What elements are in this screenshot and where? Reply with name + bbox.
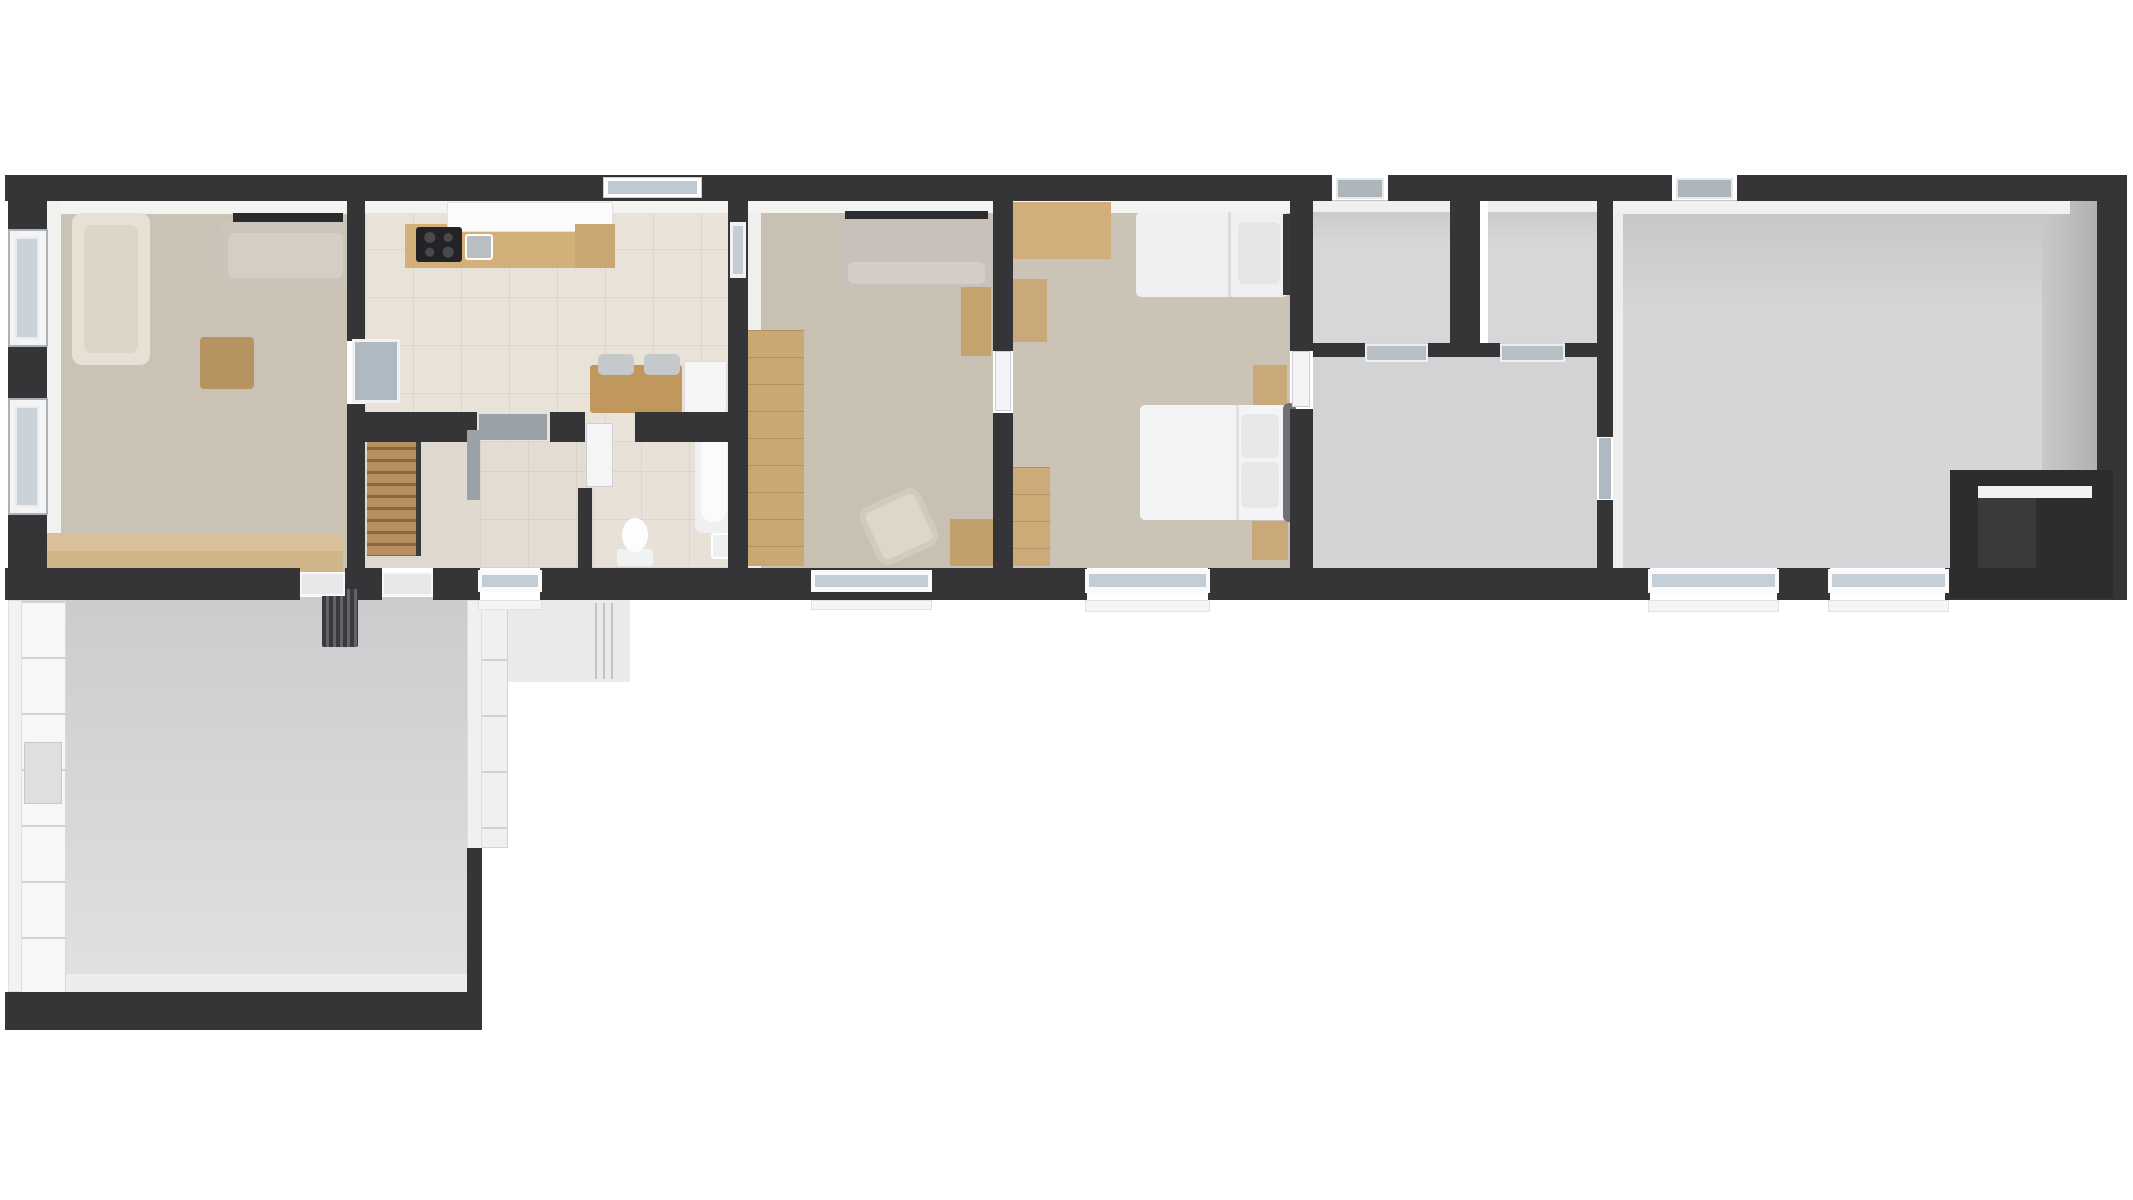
wall-bedroom-a-b-upper [993,175,1013,351]
garage-bottom-wall-face [22,974,467,994]
bedroom-b-cabinet [1010,279,1047,342]
wall-bedroom-a-b-lower [993,413,1013,568]
living-west-wall-face [47,201,61,577]
kitchen-bottom-wall-3 [635,412,740,442]
bedroom-a-window-sill [811,600,932,610]
bedroom-a-bottom-window-glass [815,575,928,587]
right-room-west-wall-face [1613,213,1623,568]
tv-console-strip [233,213,343,222]
right-room-window-2-sill [1828,600,1949,612]
door-bedroom-a [995,351,1011,411]
bottom-wall-1 [5,568,300,600]
bedroom-a-headboard [845,211,988,219]
right-room-window-1-sill [1648,600,1779,612]
corridor-floor [1313,343,1597,568]
stoop-grate [595,603,617,679]
niche-shelf [1978,486,2092,498]
kitchen-top-window-glass [608,181,697,194]
wall-living-kitchen-upper [347,175,365,341]
wall-small-rooms-divider [1450,175,1480,355]
door-living-kitchen [352,339,400,403]
double-bed-fold [1236,405,1239,520]
wall-bedroom-b-corridor-upper [1290,175,1313,351]
double-bed-pillow-2 [1241,462,1279,508]
wall-corridor-right-room-upper [1597,175,1613,437]
right-room-top-wall-face [1613,201,2070,214]
wall-corridor-right-room-lower [1597,500,1613,568]
small-room-2-wall-face [1488,201,1600,212]
niche-inner-floor [1978,498,2036,568]
top-wall-east [1737,175,2110,201]
bedroom-a-desk [950,519,993,566]
stairs-run [367,426,417,556]
wall-below-small-rooms-mid [1428,343,1500,357]
kitchen-sink [465,234,493,260]
bedroom-b-patio-door-glass [1089,574,1206,587]
bottom-wall-6 [1777,568,1830,600]
west-wall-stub-1 [8,175,47,229]
bedroom-b-door-sill [1085,600,1210,612]
kitchen-bottom-wall-1 [347,412,477,442]
bathtub-inner [701,434,727,522]
bedroom-b-desk [1007,202,1111,259]
entry-door-sill-2 [1676,178,1733,199]
living-sofa-2-seat [228,233,343,278]
hallway-window-sill [478,600,542,610]
garage-west-wall [8,600,22,992]
bedroom-a-sideboard [961,287,991,356]
stair-railing [416,426,421,556]
garage-threshold-stairwell [382,572,433,596]
counter-board [575,224,615,268]
toilet-bowl [622,518,648,552]
bench-highlight [42,533,343,551]
small-room-1-threshold [1365,344,1428,362]
nightstand-b2 [1252,521,1288,560]
single-bed-headboard [1283,214,1290,295]
bottom-wall-3 [433,568,480,600]
door-stairwell-hallway [467,430,480,500]
garage-bottom-wall [5,992,482,1030]
small-room-2-floor [1488,200,1600,343]
right-room-window-1-glass [1652,574,1775,587]
small-room-1-floor [1313,200,1452,343]
wall-living-stairwell [347,442,365,577]
west-wall-stub-2 [8,347,47,398]
door-bathroom [586,423,613,487]
door-bedroom-b [1292,351,1310,407]
kitchen-bottom-wall-2 [550,412,585,442]
garage-shelf-items [24,742,62,804]
entry-door-sill-1 [1336,178,1384,199]
living-west-window-2-glass [15,406,39,507]
single-bed-fold [1228,212,1231,297]
floor-plan-canvas [0,0,2133,1200]
bedroom-a-wardrobe [748,330,804,566]
bottom-wall-5 [1208,568,1650,600]
garage-east-wall-dark [467,848,482,992]
small-room-2-threshold [1500,344,1565,362]
kitchen-chair-1 [598,354,634,375]
hallway-bottom-window-glass [482,575,538,587]
door-kitchen-hallway [479,414,547,440]
hallway-floor [480,442,593,568]
top-wall-mid [1388,175,1672,201]
radiator [322,589,358,647]
small-room-1-wall-face [1313,201,1452,212]
garage-threshold-living [300,572,345,596]
wall-below-small-room-1 [1313,343,1365,357]
interior-window-glass [733,226,743,274]
kitchen-chair-2 [644,354,680,375]
fridge [684,361,727,413]
wall-hallway-bathroom [578,488,592,568]
garage-floor [22,597,467,992]
door-corridor-right-room [1599,438,1611,499]
living-west-window-1-glass [15,237,39,339]
single-bed-pillow [1238,222,1280,284]
wall-bedroom-b-corridor-lower [1290,409,1313,568]
double-bed-pillow-1 [1241,414,1279,458]
bedroom-a-daybed-front [848,262,985,284]
right-room-window-2-glass [1832,574,1945,587]
cooktop [416,227,462,262]
nightstand-b1 [1253,365,1287,406]
garage-east-wall-white [467,600,482,850]
living-sofa-seat [84,225,138,353]
coffee-table [200,337,254,389]
bedroom-b-dresser [1008,467,1050,566]
